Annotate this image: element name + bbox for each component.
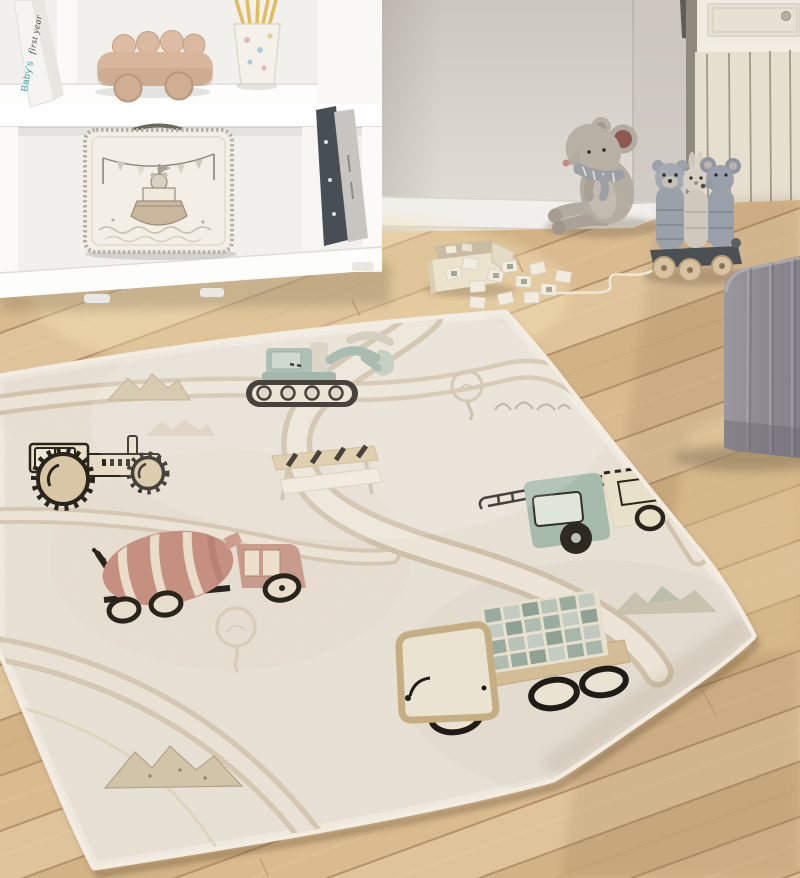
shelf-right-column: [318, 0, 382, 104]
drawer-knob: [782, 12, 791, 21]
toy-car-wheel: [115, 75, 142, 102]
cup-with-sticks: [234, 0, 280, 90]
plush-nose: [563, 160, 570, 167]
toy-car-wheel: [166, 73, 193, 100]
screenshot: Baby's first year: [0, 0, 800, 878]
shelf-foot: [352, 262, 374, 271]
mixer-wheel: [108, 597, 141, 623]
toy-suitcase: [85, 126, 237, 261]
mixer-wheel: [150, 591, 183, 617]
playroom-scene: Baby's first year: [0, 0, 800, 878]
fire-truck-wheel: [637, 507, 663, 529]
shelf-divider-top: [57, 0, 77, 85]
shelf-foot: [200, 288, 224, 297]
white-shelf-unit: Baby's first year: [0, 0, 390, 312]
dump-cab: [399, 625, 496, 720]
shelf-foot: [84, 294, 110, 303]
peg-bear: [652, 160, 688, 250]
